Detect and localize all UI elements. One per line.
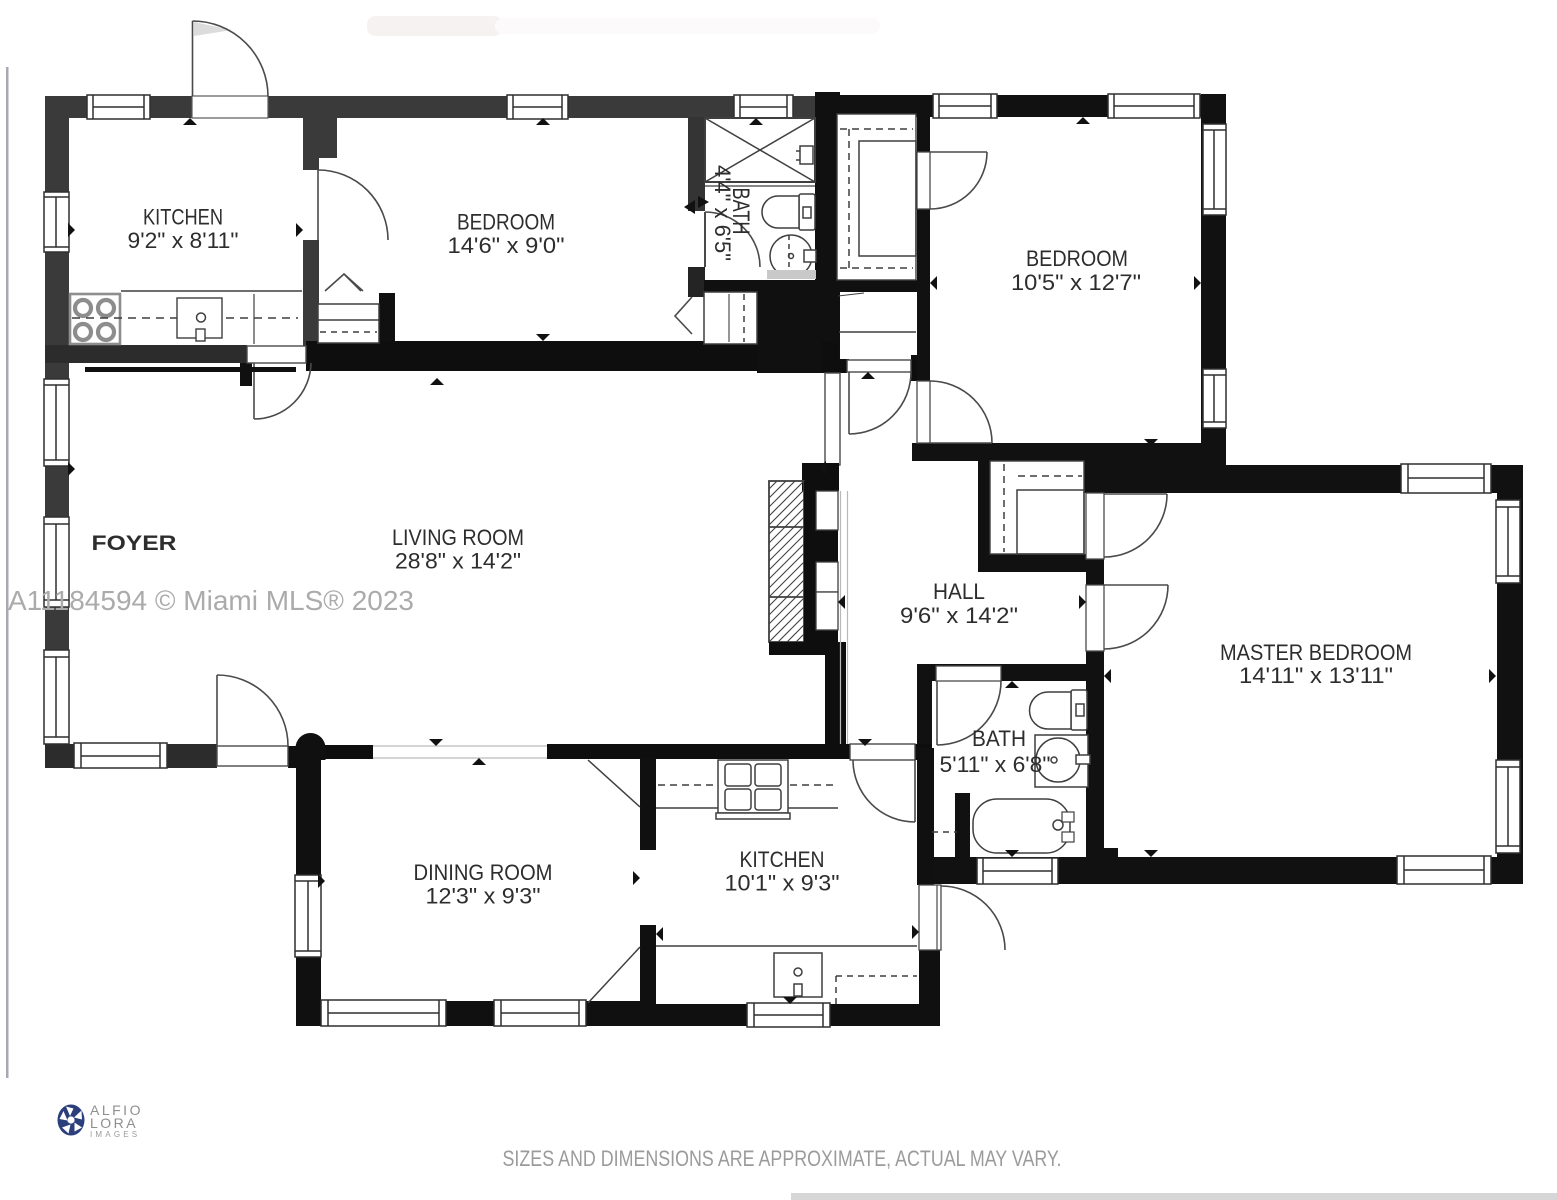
- svg-text:LORA: LORA: [90, 1115, 138, 1131]
- svg-text:SIZES AND DIMENSIONS ARE APPRO: SIZES AND DIMENSIONS ARE APPROXIMATE, AC…: [503, 1146, 1062, 1171]
- svg-text:9'2" x 8'11": 9'2" x 8'11": [128, 228, 239, 253]
- svg-text:14'11" x 13'11": 14'11" x 13'11": [1239, 663, 1393, 688]
- svg-text:9'6" x 14'2": 9'6" x 14'2": [900, 603, 1018, 628]
- svg-text:10'1" x 9'3": 10'1" x 9'3": [725, 871, 840, 896]
- svg-text:12'3" x 9'3": 12'3" x 9'3": [426, 884, 541, 909]
- svg-text:BATH: BATH: [972, 726, 1026, 751]
- svg-text:14'6" x 9'0": 14'6" x 9'0": [448, 233, 565, 258]
- svg-text:28'8" x 14'2": 28'8" x 14'2": [395, 549, 521, 574]
- svg-text:KITCHEN: KITCHEN: [143, 205, 223, 230]
- svg-text:KITCHEN: KITCHEN: [740, 847, 825, 872]
- svg-text:BEDROOM: BEDROOM: [457, 210, 555, 235]
- svg-text:LIVING ROOM: LIVING ROOM: [392, 525, 524, 550]
- svg-text:10'5" x 12'7": 10'5" x 12'7": [1011, 270, 1141, 295]
- svg-text:HALL: HALL: [933, 579, 985, 604]
- svg-text:MASTER BEDROOM: MASTER BEDROOM: [1220, 640, 1412, 665]
- svg-text:FOYER: FOYER: [92, 532, 177, 555]
- svg-text:IMAGES: IMAGES: [90, 1130, 140, 1139]
- svg-text:DINING ROOM: DINING ROOM: [414, 860, 553, 885]
- svg-text:4'4" x 6'5": 4'4" x 6'5": [710, 165, 735, 261]
- svg-text:5'11" x 6'8": 5'11" x 6'8": [940, 752, 1051, 777]
- svg-text:BEDROOM: BEDROOM: [1026, 246, 1128, 271]
- svg-text:A11184594 © Miami MLS® 2023: A11184594 © Miami MLS® 2023: [8, 585, 414, 616]
